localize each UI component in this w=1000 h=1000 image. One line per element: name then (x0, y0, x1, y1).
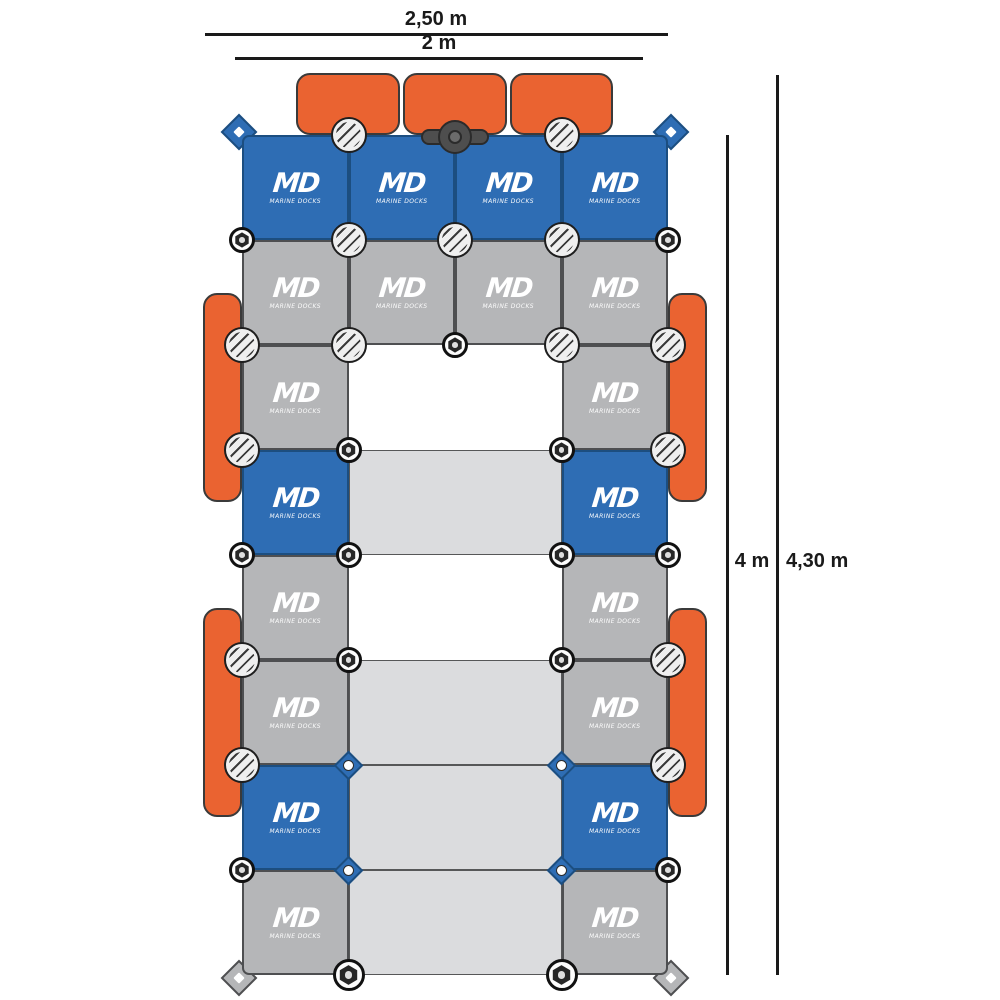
cleat-center-hole (448, 130, 462, 144)
dock-module-gray: MDMARINE DOCKS (242, 660, 349, 765)
logo-md-text: MD (591, 695, 639, 722)
logo-subtitle-text: MARINE DOCKS (483, 198, 534, 205)
dock-module-blue: MDMARINE DOCKS (562, 765, 669, 870)
marine-docks-logo: MDMARINE DOCKS (564, 767, 667, 868)
dimension-line-total-length (776, 75, 779, 975)
marine-docks-logo: MDMARINE DOCKS (351, 242, 454, 343)
walkway-panel (349, 870, 562, 975)
dock-layout-canvas: 2,50 m 2 m 4 m 4,30 m MDMARINE DOCKSMDMA… (0, 0, 1000, 1000)
dimension-label-total-width: 2,50 m (336, 8, 536, 31)
logo-md-text: MD (378, 275, 426, 302)
marine-docks-logo: MDMARINE DOCKS (564, 452, 667, 553)
hex-nut-connector (442, 332, 468, 358)
hex-nut-connector (229, 227, 255, 253)
hex-nut-connector (229, 542, 255, 568)
hex-nut-connector (655, 857, 681, 883)
hex-nut-connector (229, 857, 255, 883)
logo-md-text: MD (271, 800, 319, 827)
dimension-label-deck-length: 4 m (727, 550, 777, 573)
logo-subtitle-text: MARINE DOCKS (589, 303, 640, 310)
fender-bumper-right (668, 608, 707, 817)
dock-module-gray: MDMARINE DOCKS (349, 240, 456, 345)
fender-bumper-left (203, 608, 242, 817)
dimension-line-deck-width (235, 57, 643, 60)
hex-nut-connector (336, 542, 362, 568)
dock-module-gray: MDMARINE DOCKS (562, 240, 669, 345)
logo-subtitle-text: MARINE DOCKS (270, 723, 321, 730)
logo-md-text: MD (591, 170, 639, 197)
mooring-cleat (421, 120, 489, 154)
marine-docks-logo: MDMARINE DOCKS (244, 347, 347, 448)
logo-subtitle-text: MARINE DOCKS (270, 933, 321, 940)
marine-docks-logo: MDMARINE DOCKS (457, 242, 560, 343)
screw-cap-connector (544, 327, 580, 363)
logo-subtitle-text: MARINE DOCKS (270, 303, 321, 310)
logo-md-text: MD (271, 695, 319, 722)
screw-cap-connector (224, 327, 260, 363)
logo-subtitle-text: MARINE DOCKS (376, 198, 427, 205)
logo-md-text: MD (271, 380, 319, 407)
screw-cap-connector (437, 222, 473, 258)
logo-subtitle-text: MARINE DOCKS (589, 933, 640, 940)
marine-docks-logo: MDMARINE DOCKS (244, 767, 347, 868)
dock-module-blue: MDMARINE DOCKS (562, 450, 669, 555)
dock-module-blue: MDMARINE DOCKS (242, 765, 349, 870)
logo-md-text: MD (378, 170, 426, 197)
hex-nut-connector-large (546, 959, 578, 991)
logo-subtitle-text: MARINE DOCKS (270, 513, 321, 520)
logo-subtitle-text: MARINE DOCKS (270, 198, 321, 205)
dock-module-gray: MDMARINE DOCKS (455, 240, 562, 345)
hex-nut-connector (549, 542, 575, 568)
screw-cap-connector (650, 642, 686, 678)
marine-docks-logo: MDMARINE DOCKS (564, 242, 667, 343)
logo-subtitle-text: MARINE DOCKS (589, 198, 640, 205)
logo-md-text: MD (591, 380, 639, 407)
hex-nut-connector (549, 647, 575, 673)
screw-cap-connector (650, 327, 686, 363)
logo-md-text: MD (271, 485, 319, 512)
marine-docks-logo: MDMARINE DOCKS (244, 872, 347, 973)
marine-docks-logo: MDMARINE DOCKS (564, 557, 667, 658)
walkway-panel (349, 450, 562, 555)
screw-cap-connector (650, 432, 686, 468)
marine-docks-logo: MDMARINE DOCKS (244, 242, 347, 343)
hex-nut-connector-large (333, 959, 365, 991)
logo-subtitle-text: MARINE DOCKS (270, 408, 321, 415)
fender-bumper-right (668, 293, 707, 502)
dock-module-blue: MDMARINE DOCKS (242, 135, 349, 240)
logo-subtitle-text: MARINE DOCKS (483, 303, 534, 310)
logo-subtitle-text: MARINE DOCKS (376, 303, 427, 310)
dock-module-gray: MDMARINE DOCKS (562, 555, 669, 660)
screw-cap-connector (331, 222, 367, 258)
marine-docks-logo: MDMARINE DOCKS (564, 872, 667, 973)
dimension-line-total-width (205, 33, 668, 36)
screw-cap-connector (331, 327, 367, 363)
logo-md-text: MD (591, 905, 639, 932)
dock-module-gray: MDMARINE DOCKS (242, 345, 349, 450)
hex-nut-connector (655, 227, 681, 253)
screw-cap-connector (224, 747, 260, 783)
logo-subtitle-text: MARINE DOCKS (589, 618, 640, 625)
marine-docks-logo: MDMARINE DOCKS (564, 347, 667, 448)
logo-md-text: MD (271, 905, 319, 932)
hex-nut-connector (655, 542, 681, 568)
logo-md-text: MD (484, 170, 532, 197)
walkway-panel (349, 765, 562, 870)
marine-docks-logo: MDMARINE DOCKS (244, 557, 347, 658)
screw-cap-connector (224, 642, 260, 678)
dock-module-gray: MDMARINE DOCKS (562, 660, 669, 765)
logo-md-text: MD (591, 800, 639, 827)
hex-nut-connector (549, 437, 575, 463)
logo-subtitle-text: MARINE DOCKS (589, 723, 640, 730)
marine-docks-logo: MDMARINE DOCKS (564, 137, 667, 238)
logo-subtitle-text: MARINE DOCKS (270, 618, 321, 625)
marine-docks-logo: MDMARINE DOCKS (564, 662, 667, 763)
hex-nut-connector (336, 437, 362, 463)
dock-module-gray: MDMARINE DOCKS (562, 345, 669, 450)
logo-md-text: MD (591, 590, 639, 617)
screw-cap-connector (650, 747, 686, 783)
logo-md-text: MD (591, 485, 639, 512)
marine-docks-logo: MDMARINE DOCKS (244, 662, 347, 763)
dock-module-gray: MDMARINE DOCKS (242, 870, 349, 975)
logo-md-text: MD (271, 590, 319, 617)
logo-md-text: MD (591, 275, 639, 302)
dock-module-gray: MDMARINE DOCKS (242, 555, 349, 660)
walkway-panel (349, 660, 562, 765)
logo-md-text: MD (271, 275, 319, 302)
logo-md-text: MD (484, 275, 532, 302)
logo-subtitle-text: MARINE DOCKS (270, 828, 321, 835)
logo-subtitle-text: MARINE DOCKS (589, 828, 640, 835)
dock-module-gray: MDMARINE DOCKS (242, 240, 349, 345)
screw-cap-connector (544, 222, 580, 258)
logo-subtitle-text: MARINE DOCKS (589, 513, 640, 520)
dock-module-gray: MDMARINE DOCKS (562, 870, 669, 975)
dimension-line-deck-length (726, 135, 729, 975)
marine-docks-logo: MDMARINE DOCKS (244, 137, 347, 238)
screw-cap-connector (224, 432, 260, 468)
screw-cap-connector (331, 117, 367, 153)
logo-subtitle-text: MARINE DOCKS (589, 408, 640, 415)
screw-cap-connector (544, 117, 580, 153)
hex-nut-connector (336, 647, 362, 673)
dock-module-blue: MDMARINE DOCKS (242, 450, 349, 555)
logo-md-text: MD (271, 170, 319, 197)
dimension-label-total-length: 4,30 m (786, 550, 848, 573)
dock-module-blue: MDMARINE DOCKS (562, 135, 669, 240)
marine-docks-logo: MDMARINE DOCKS (244, 452, 347, 553)
fender-bumper-left (203, 293, 242, 502)
